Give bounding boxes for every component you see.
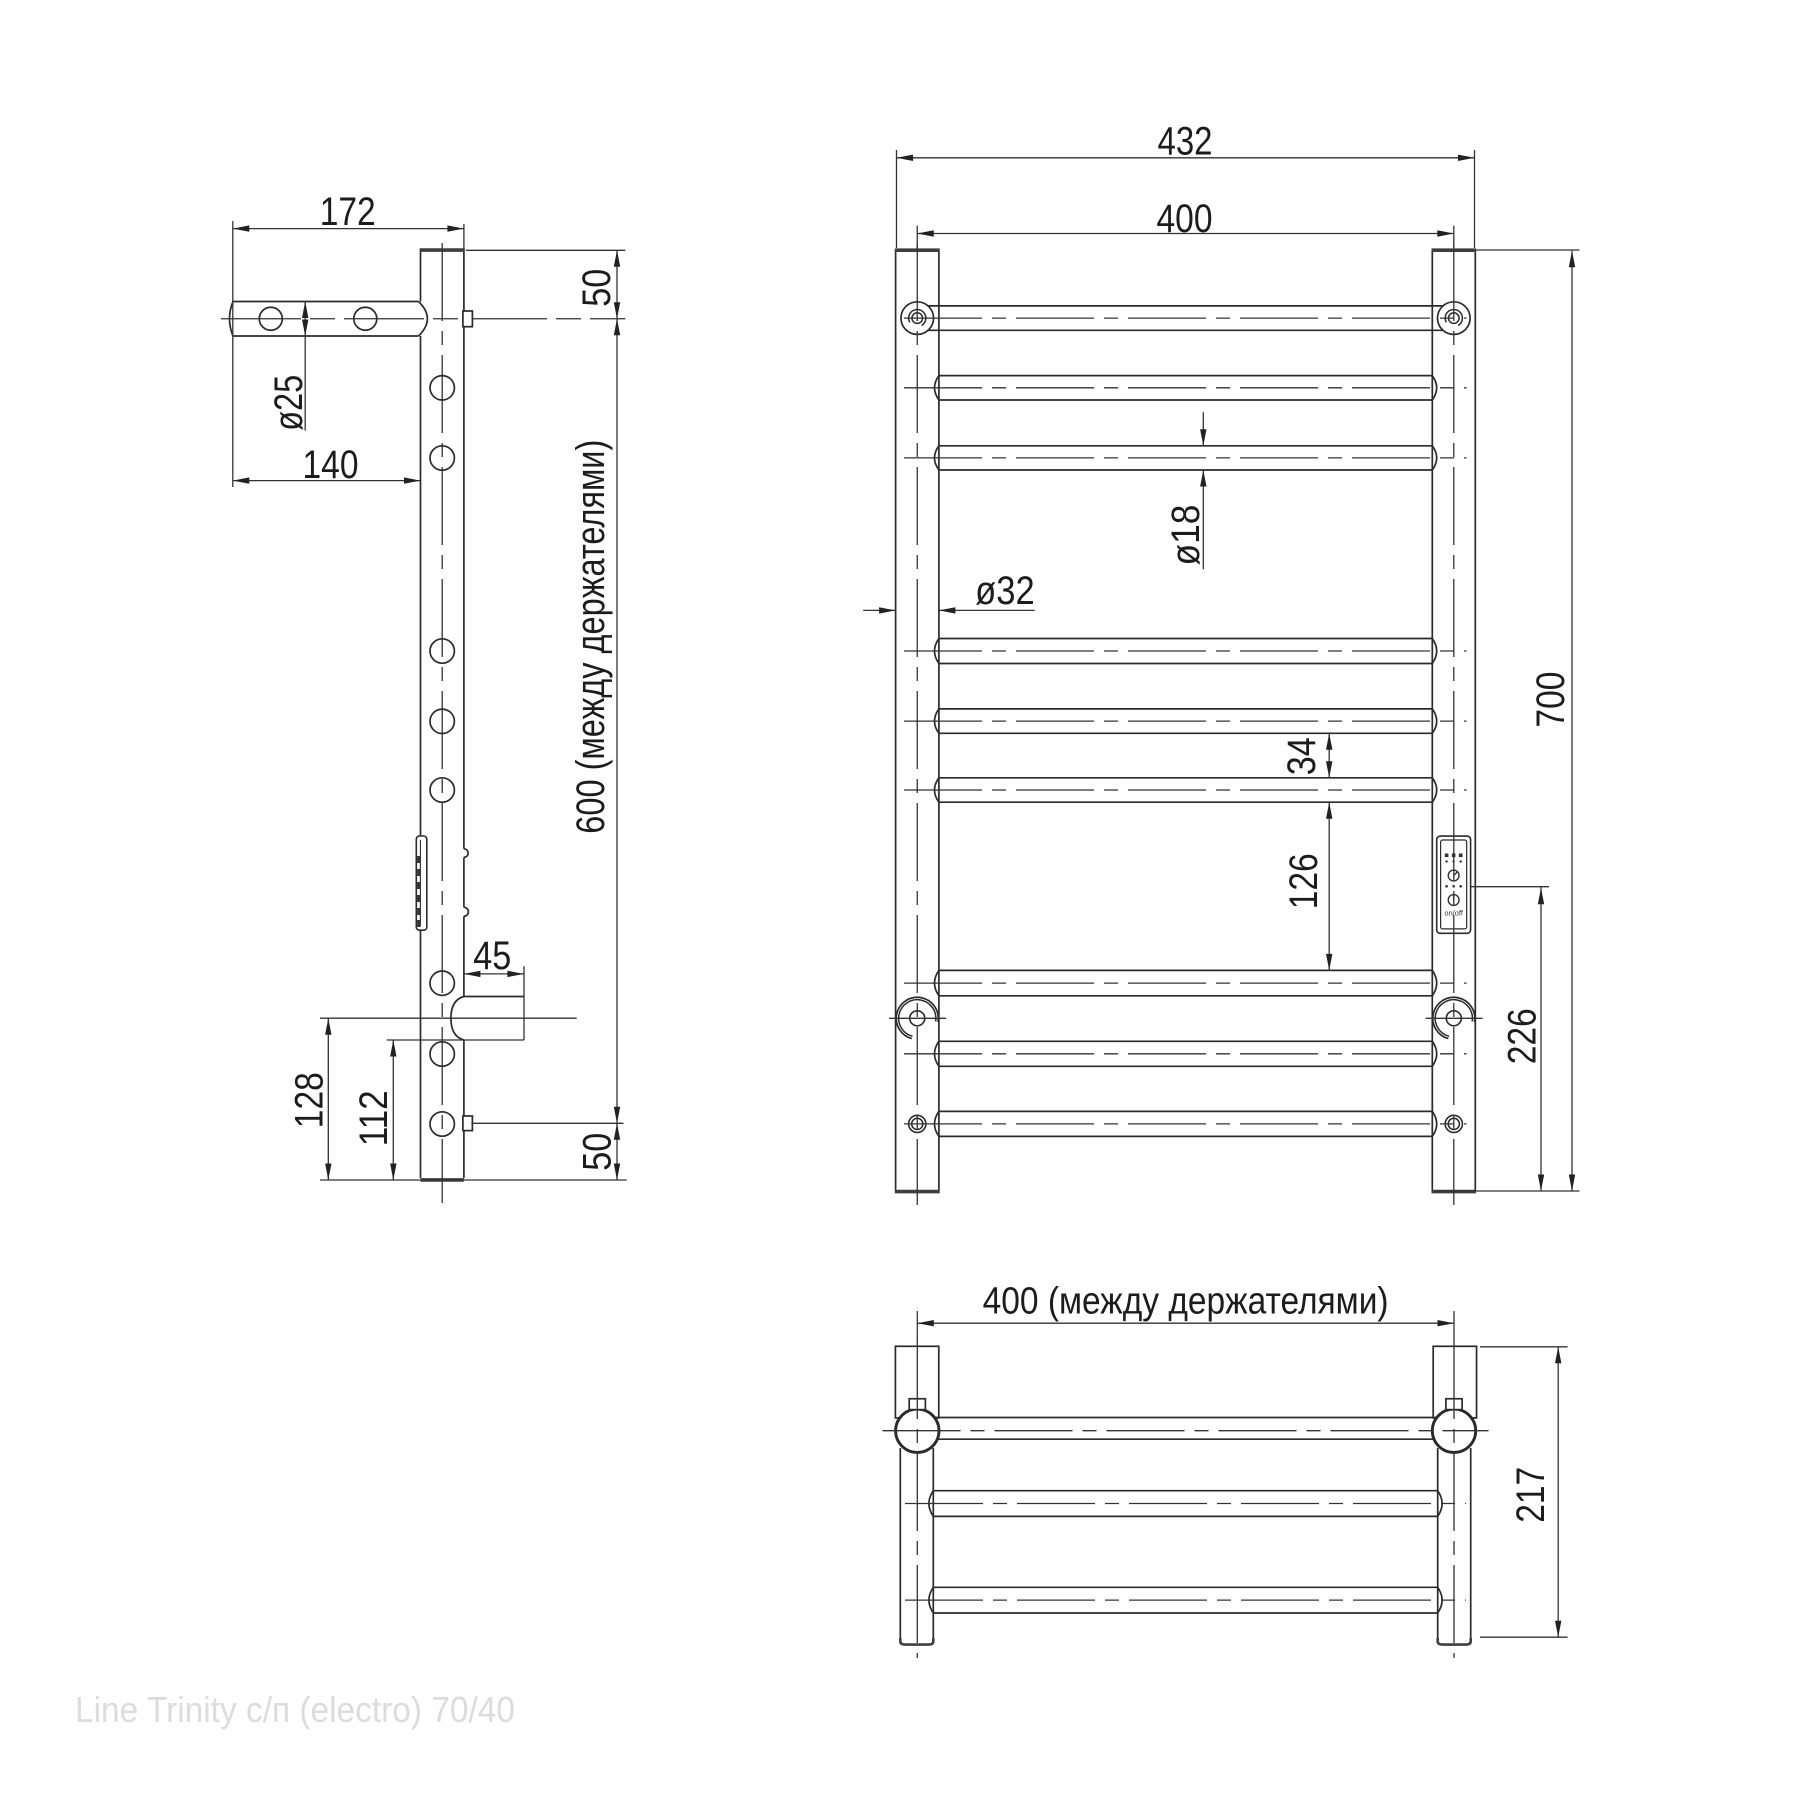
svg-text:128: 128 [288,1072,332,1128]
svg-text:217: 217 [1509,1467,1553,1523]
svg-text:Line Trinity с/п (electro) 70/: Line Trinity с/п (electro) 70/40 [75,1689,515,1730]
svg-text:50: 50 [575,269,619,307]
svg-text:50: 50 [576,1133,620,1171]
svg-text:140: 140 [303,443,359,487]
svg-text:ø32: ø32 [975,569,1035,613]
svg-text:126: 126 [1282,853,1326,909]
svg-text:700: 700 [1529,672,1573,728]
svg-text:112: 112 [352,1090,396,1146]
svg-text:ø18: ø18 [1164,505,1208,566]
svg-text:34: 34 [1280,737,1324,775]
svg-text:600 (между держателями): 600 (между держателями) [569,440,613,834]
svg-text:432: 432 [1158,119,1213,163]
svg-text:226: 226 [1501,1008,1545,1064]
svg-text:400 (между держателями): 400 (между держателями) [983,1281,1389,1323]
svg-text:400: 400 [1157,197,1213,241]
svg-text:45: 45 [473,934,511,978]
svg-text:172: 172 [320,190,376,234]
svg-text:ø25: ø25 [267,375,311,431]
